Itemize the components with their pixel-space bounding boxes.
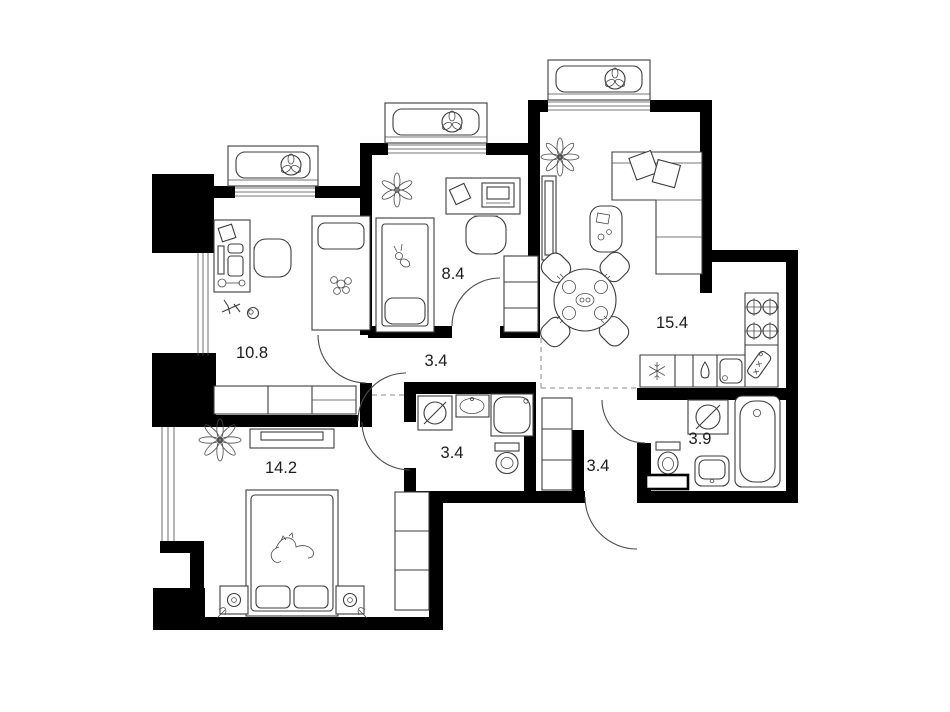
nightstand-left: [217, 586, 248, 618]
corridor-wardrobe: [542, 398, 572, 490]
window-left-1: [198, 253, 208, 356]
coffee-table: [590, 206, 622, 252]
window-top-2: [388, 145, 486, 153]
cabinet-box: [646, 475, 688, 489]
kitchen-counter: [640, 293, 779, 387]
wardrobe: [395, 492, 429, 610]
shower-cabin: [491, 394, 533, 436]
room-label-bedroom: 14.2: [265, 459, 297, 477]
water-heater-icon: [688, 400, 728, 434]
desk-chair: [466, 216, 506, 254]
window-top-1: [235, 188, 315, 196]
room-label-corridor: 3.4: [587, 457, 610, 475]
desk-chair: [254, 239, 291, 277]
plant-icon: [541, 138, 579, 176]
room-label-child-1: 10.8: [236, 344, 268, 362]
corner-sofa: [612, 151, 702, 274]
tv-console: [250, 429, 334, 448]
kitchen-living-furniture: [537, 138, 779, 387]
ac-units: [228, 60, 650, 186]
bathroom-fixtures: [418, 394, 533, 474]
floor-plan: 10.8 8.4 3.4 15.4 14.2 3.4 3.4 3.9: [0, 0, 950, 712]
sink: [695, 456, 729, 486]
ac-unit-2: [385, 103, 487, 143]
shelf-unit: [504, 256, 538, 332]
kitchen-sink: [720, 359, 742, 383]
ac-unit-1: [228, 146, 318, 186]
bathroom-2-fixtures: [646, 396, 780, 489]
door-arc-bathroom: [362, 422, 410, 470]
entrance-door-arc: [585, 497, 637, 549]
single-bed: [312, 216, 370, 330]
bathtub: [735, 396, 780, 487]
dining-table: [554, 269, 616, 331]
child-room-1-furniture: [214, 216, 370, 414]
dining-set: [537, 249, 633, 351]
door-arc-bathroom-2: [602, 400, 645, 443]
pillow: [294, 586, 328, 608]
nightstand-right: [336, 586, 367, 618]
room-label-kitchen: 15.4: [656, 314, 688, 332]
tv-cabinet: [542, 176, 556, 260]
window-left-2: [162, 427, 174, 541]
desk: [214, 220, 250, 292]
washing-machine-icon: [418, 396, 452, 430]
toy-airplane-icon: [222, 300, 240, 314]
toilet: [495, 443, 519, 474]
room-label-hall: 3.4: [425, 352, 448, 370]
double-bed: [246, 490, 338, 616]
toilet: [656, 442, 680, 474]
floor-plan-page: 10.8 8.4 3.4 15.4 14.2 3.4 3.4 3.9: [0, 0, 950, 712]
room-label-bathroom: 3.4: [441, 444, 464, 462]
room-label-bathroom-2: 3.9: [689, 430, 712, 448]
pillow: [256, 586, 290, 608]
desk: [446, 178, 520, 214]
room-label-child-2: 8.4: [442, 265, 465, 283]
flower-icon: [381, 173, 413, 207]
wardrobe: [214, 386, 356, 414]
toy-ball-icon: [248, 308, 259, 319]
sink: [456, 395, 489, 417]
master-bedroom-furniture: [199, 419, 429, 618]
ac-unit-3: [548, 60, 650, 100]
single-bed: [376, 218, 434, 332]
door-arc-room-8-4: [452, 278, 500, 326]
window-top-3: [548, 102, 650, 110]
door-arc-room-10-8: [318, 335, 366, 383]
child-room-2-furniture: [376, 173, 538, 332]
